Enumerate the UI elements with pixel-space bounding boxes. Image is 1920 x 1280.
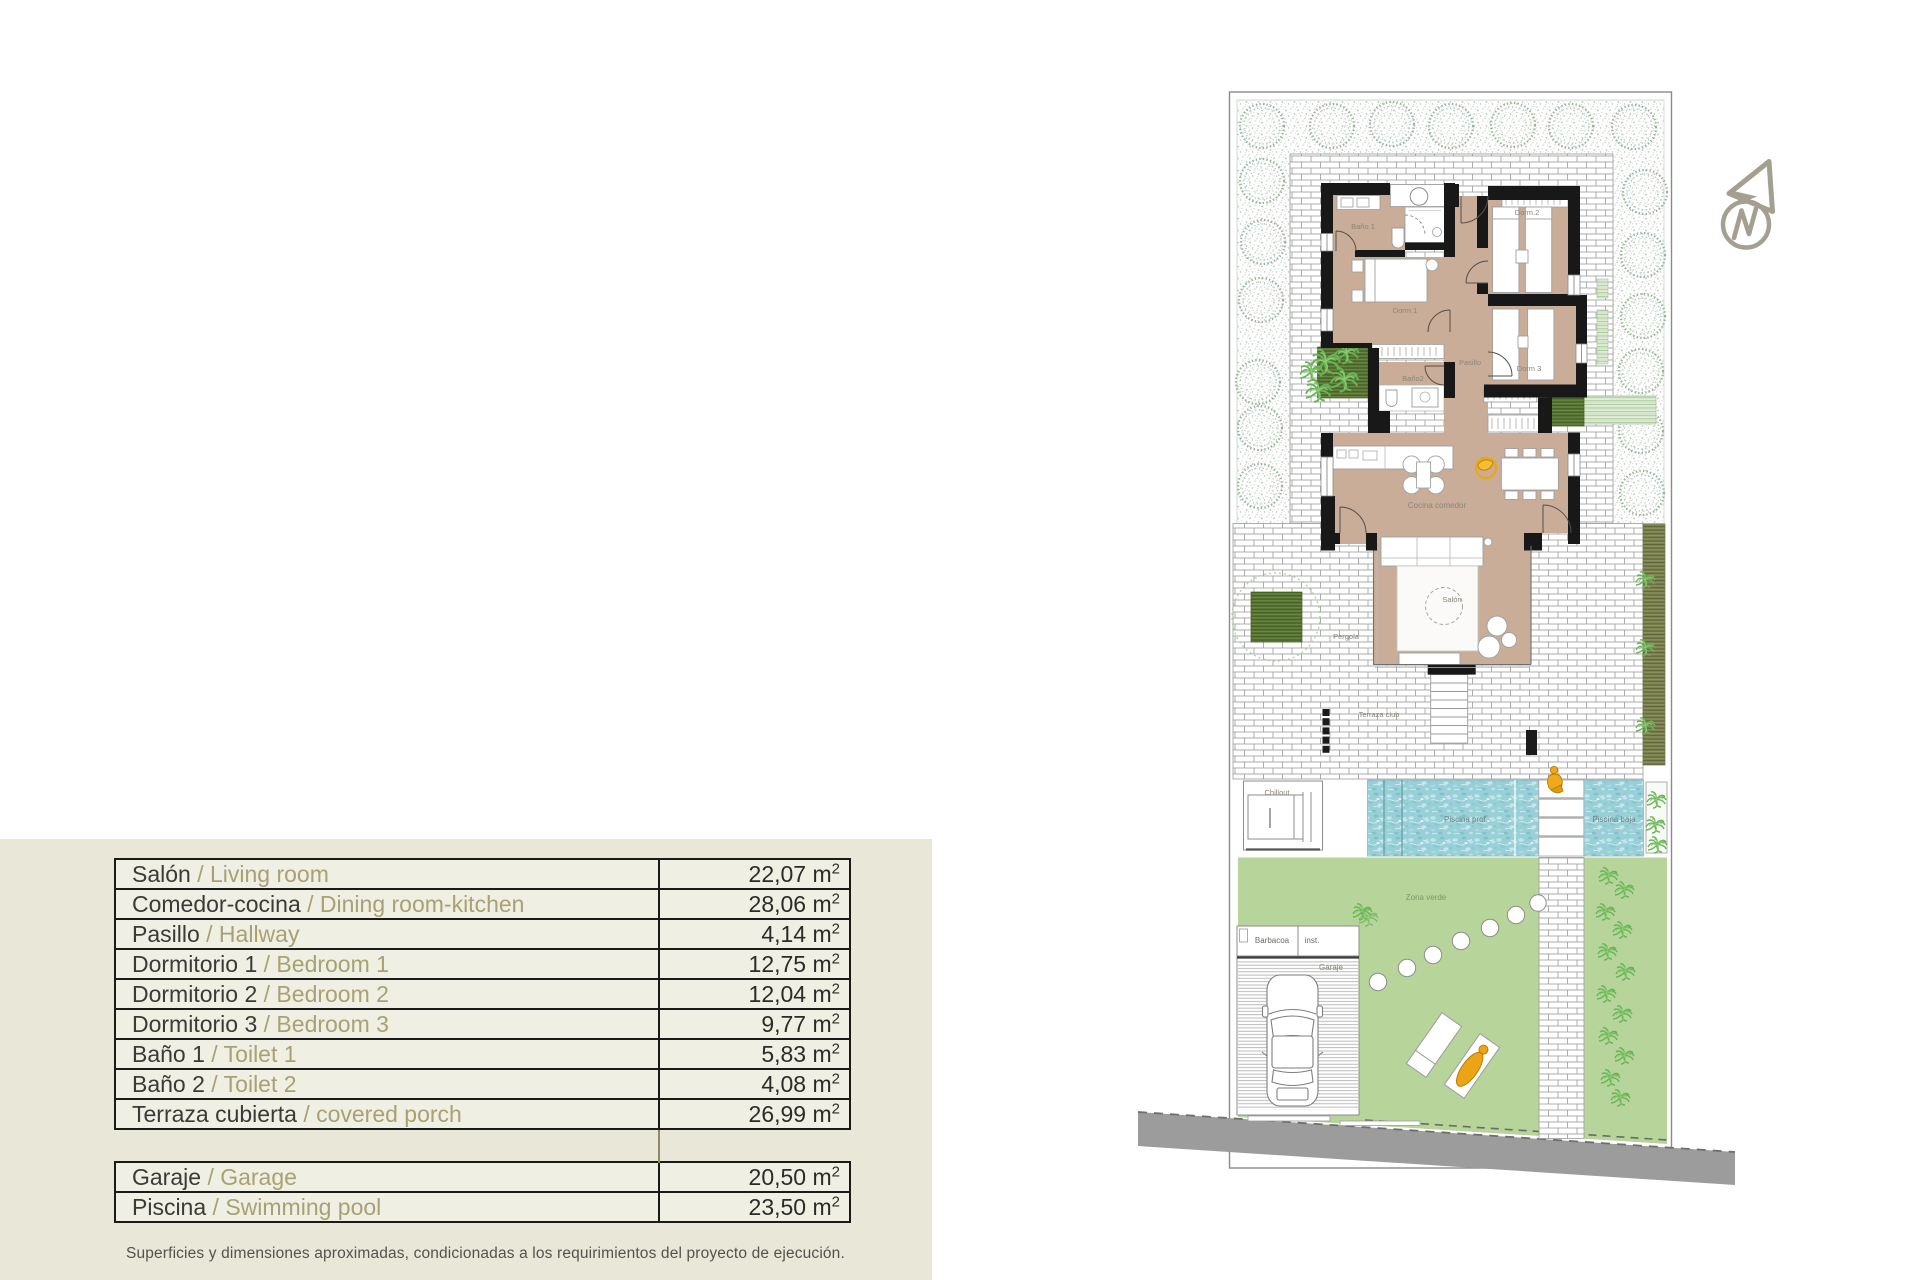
svg-text:Dorm.2: Dorm.2: [1515, 208, 1540, 217]
svg-text:Pasillo: Pasillo: [1459, 358, 1481, 367]
svg-text:Piscina baja: Piscina baja: [1592, 815, 1636, 824]
svg-text:Baño2: Baño2: [1402, 374, 1424, 383]
svg-text:Terraza club: Terraza club: [1359, 710, 1400, 719]
svg-text:Cocina comedor: Cocina comedor: [1408, 501, 1467, 510]
svg-text:Baño 1: Baño 1: [1351, 222, 1375, 231]
svg-text:Dorm 3: Dorm 3: [1517, 364, 1542, 373]
svg-text:Chillout: Chillout: [1264, 788, 1290, 797]
svg-text:Zona verde: Zona verde: [1406, 893, 1447, 902]
svg-text:Salón: Salón: [1442, 595, 1461, 604]
svg-text:Pergola: Pergola: [1333, 632, 1360, 641]
svg-text:Dorm.1: Dorm.1: [1393, 306, 1418, 315]
svg-text:Barbacoa: Barbacoa: [1255, 936, 1290, 945]
svg-text:Garaje: Garaje: [1319, 963, 1344, 972]
svg-text:inst.: inst.: [1305, 936, 1320, 945]
svg-text:Piscina prof.: Piscina prof.: [1444, 815, 1488, 824]
